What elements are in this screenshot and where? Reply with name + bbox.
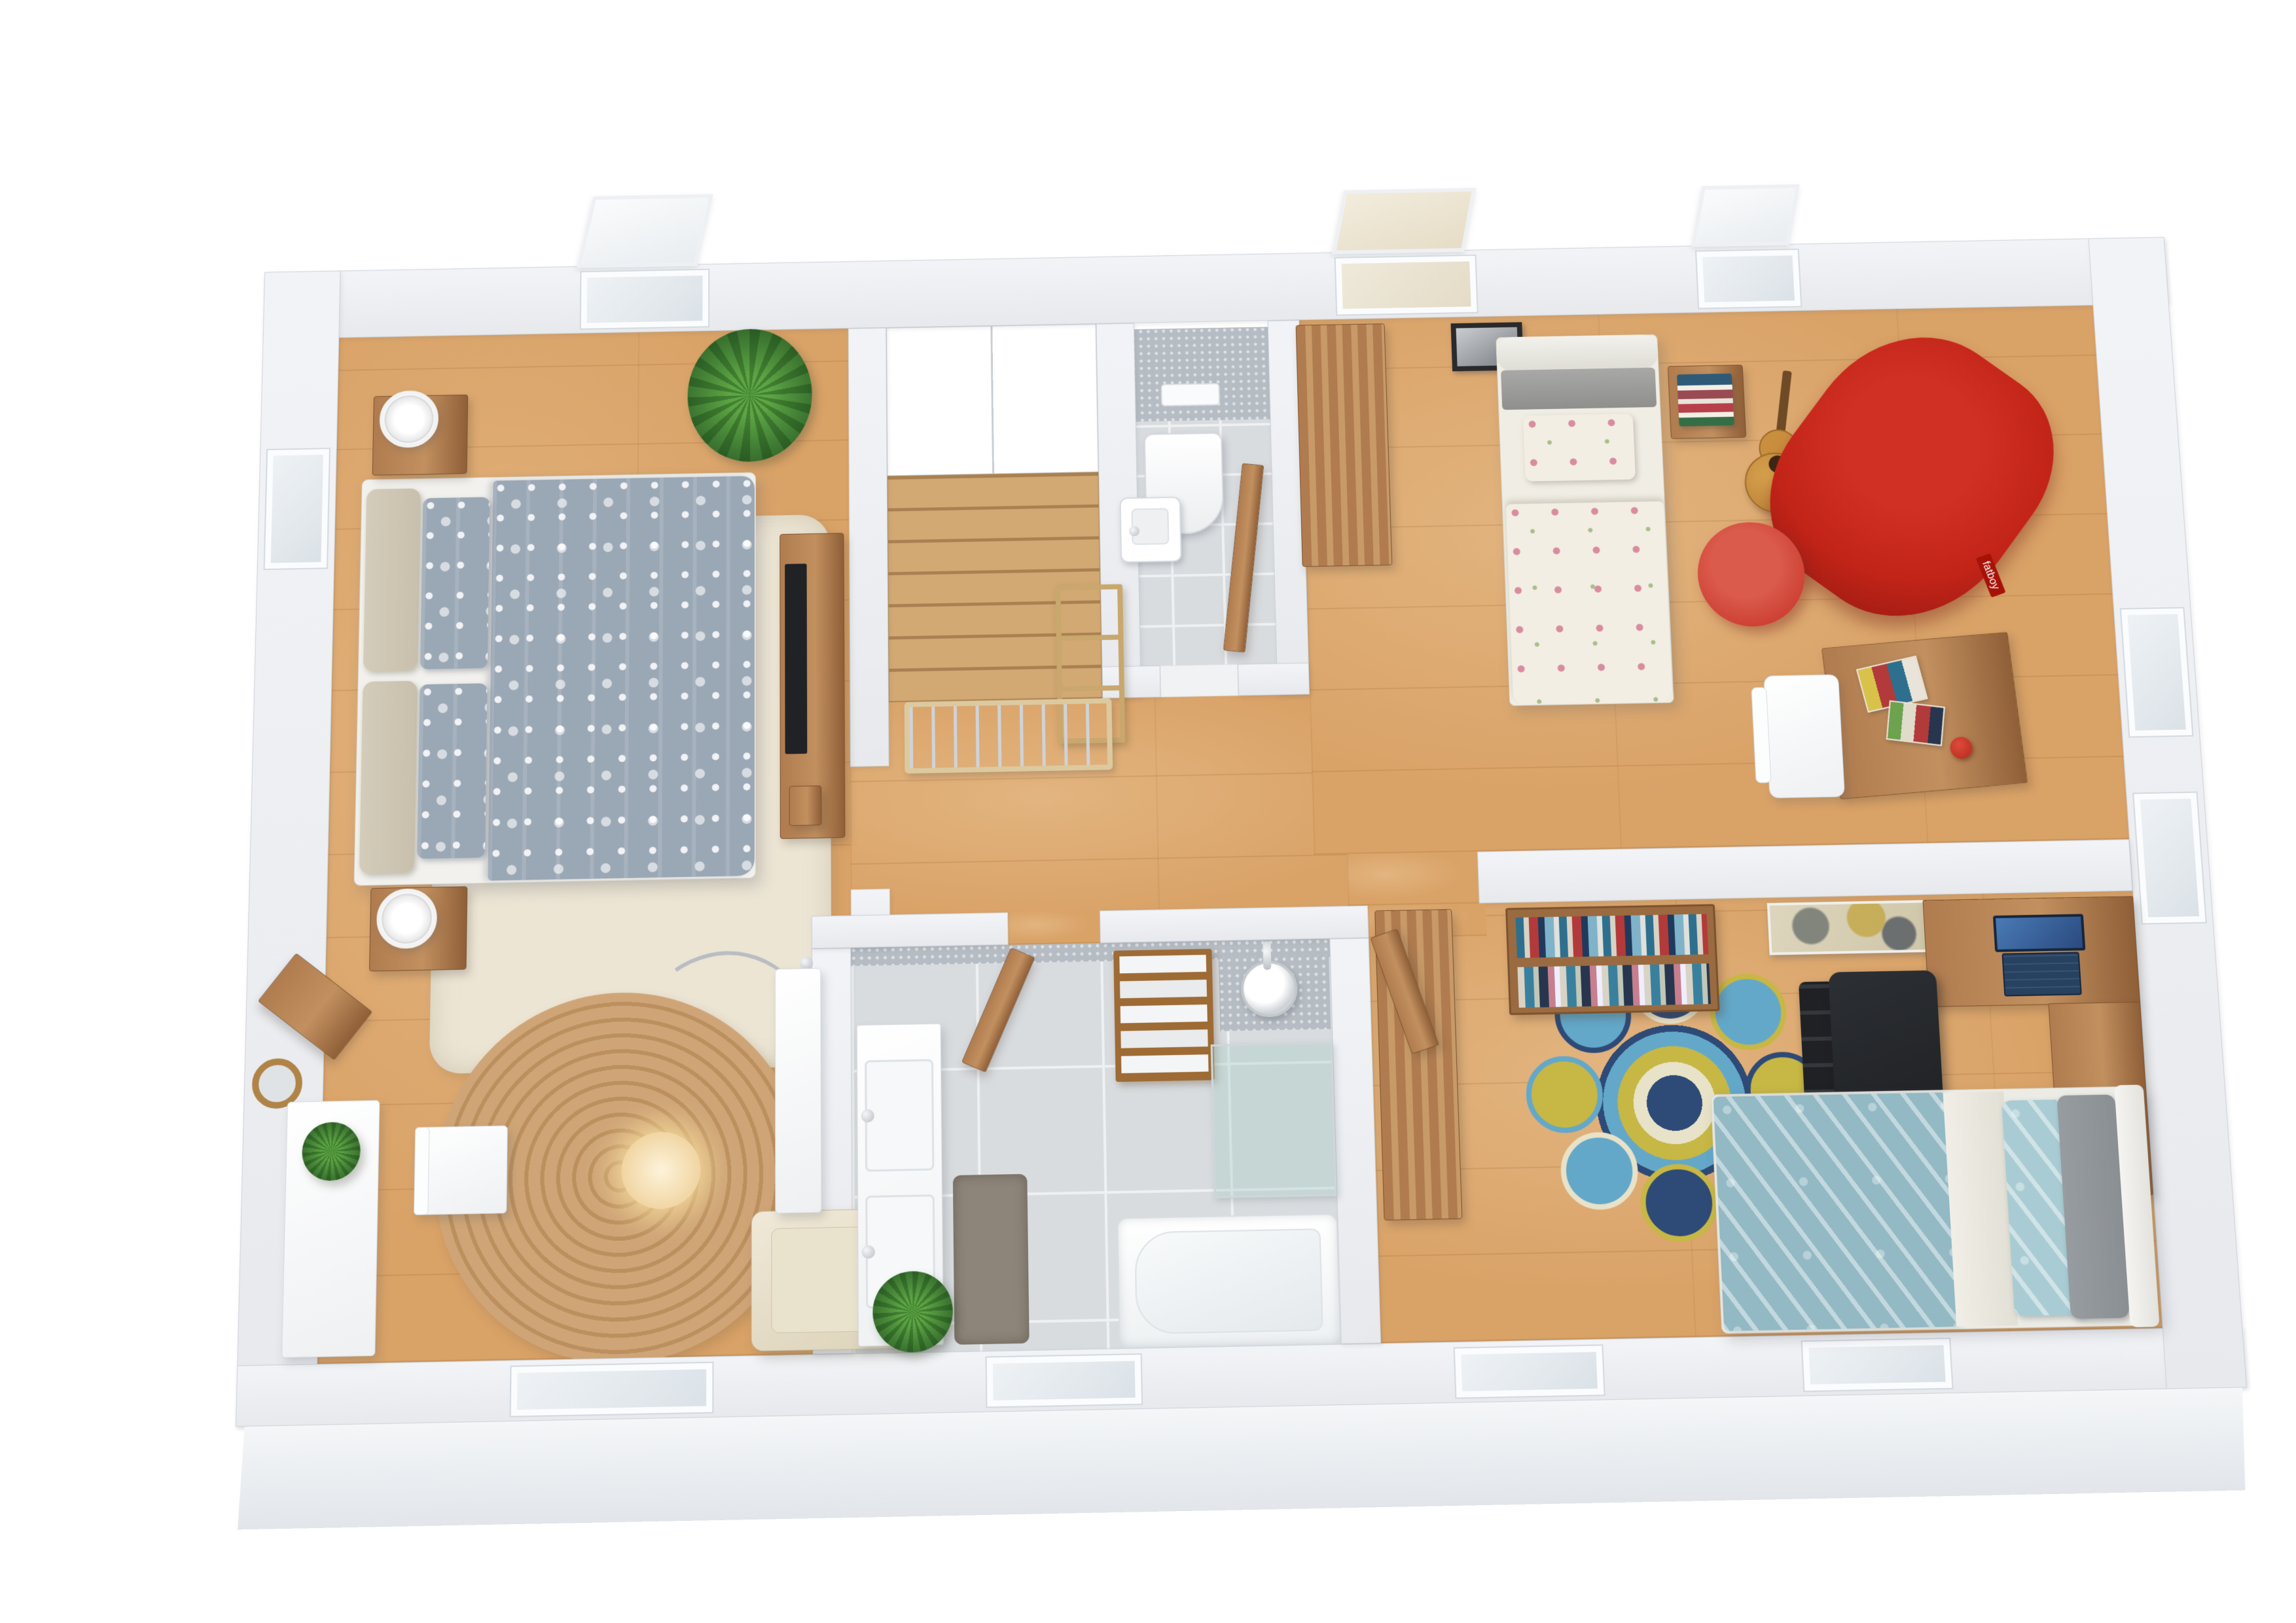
wall-wc-bottom-right <box>1238 663 1310 696</box>
window-master-bottom <box>511 1363 713 1416</box>
stacked-books <box>1677 374 1734 427</box>
master-duvet <box>488 476 755 881</box>
bedroom2-duvet <box>1506 501 1673 705</box>
window-bedroom2-blind <box>1336 256 1477 315</box>
shower-glass-screen <box>1211 1042 1337 1198</box>
bedroom2-pillow <box>1523 414 1636 482</box>
laptop-screen <box>1993 914 2086 952</box>
window-right-lower <box>2134 793 2205 923</box>
master-pillow <box>417 683 487 859</box>
book-row <box>1516 914 1709 958</box>
abstract-painting <box>1767 900 1935 955</box>
bedroom3-duvet <box>1713 1092 1960 1331</box>
window-right-upper <box>2121 609 2192 737</box>
laptop-keyboard <box>2001 952 2081 996</box>
dormer-bedroom2-a <box>1332 188 1477 254</box>
towel-ladder <box>1113 949 1215 1082</box>
floor-plan: fatboy <box>0 26 2296 1623</box>
master-desk-chair-back <box>414 1127 429 1215</box>
master-back-pillow <box>363 488 421 671</box>
window-bedroom3-bottom-left <box>1455 1346 1604 1397</box>
rug-petal <box>1525 1056 1605 1133</box>
rug-petal <box>1560 1132 1640 1210</box>
window-bedroom3-bottom-right <box>1803 1339 1952 1391</box>
stair-closet <box>886 324 1098 476</box>
wall-master-right-upper <box>848 328 889 767</box>
bedroom2-headboard-roll <box>1496 334 1659 372</box>
bedroom2-desk-chair <box>1763 674 1845 798</box>
bookcase <box>1505 904 1719 1015</box>
bathroom-door-threshold <box>1008 910 1100 944</box>
book-row <box>1517 963 1711 1008</box>
plant-stand-vase <box>789 785 822 826</box>
wc-door-threshold <box>1160 664 1238 698</box>
bedroom2-wardrobe <box>1296 323 1393 567</box>
window-bathroom-bottom <box>987 1355 1141 1406</box>
bath-rug <box>953 1174 1030 1345</box>
skylight-master <box>581 270 709 329</box>
rug-petal <box>1639 1164 1719 1243</box>
dormer-master <box>577 194 713 268</box>
wall-bathroom-top-west <box>812 912 1009 948</box>
floor-plan-canvas: fatboy <box>0 0 2296 1623</box>
wall-bathroom-top-east <box>1100 906 1369 944</box>
magazines <box>1886 700 1945 746</box>
tv-screen <box>785 563 807 754</box>
bedroom2-entry-opening <box>1347 851 1479 906</box>
bathtub-basin <box>1134 1228 1323 1334</box>
master-back-pillow <box>359 681 418 874</box>
wc-mosaic-wall <box>1115 327 1270 421</box>
master-dresser <box>775 968 821 1213</box>
master-pillow <box>420 497 490 669</box>
vanity-sink-basin <box>865 1059 934 1171</box>
dormer-bedroom2-b <box>1691 185 1799 247</box>
wc-flush-plate <box>1161 383 1220 406</box>
skylight-bedroom2 <box>1696 250 1801 308</box>
bedroom2-headboard <box>1501 368 1657 410</box>
stair-safety-gate <box>905 698 1113 774</box>
window-master-left <box>265 449 329 569</box>
shower-arm <box>1263 941 1271 970</box>
